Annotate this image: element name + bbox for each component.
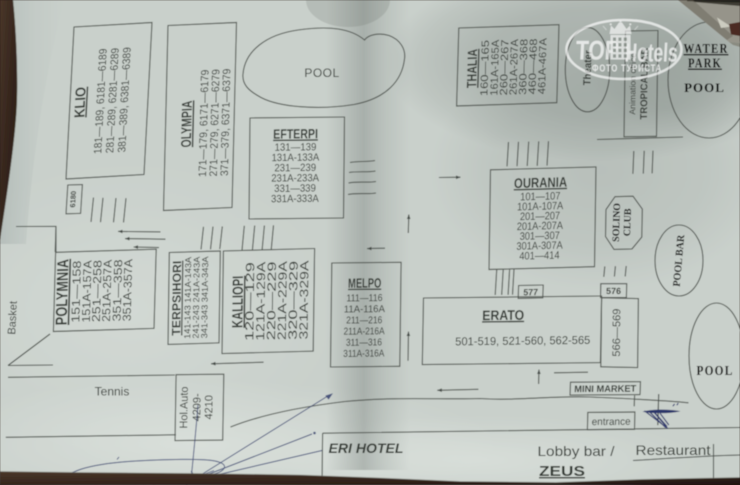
svg-text:POOL: POOL (304, 66, 339, 80)
svg-text:Hol.Auto: Hol.Auto (178, 386, 191, 428)
svg-text:OURANIA: OURANIA (514, 174, 567, 191)
svg-text:321A-329A: 321A-329A (296, 260, 311, 339)
svg-text:211—216: 211—216 (346, 315, 383, 326)
svg-text:Basket: Basket (6, 301, 20, 335)
svg-text:577: 577 (523, 287, 538, 297)
svg-text:CLUB: CLUB (622, 208, 634, 236)
svg-text:6180: 6180 (68, 191, 78, 208)
svg-text:POOL: POOL (697, 364, 734, 379)
svg-text:MELPO: MELPO (348, 276, 381, 291)
svg-text:111—116: 111—116 (346, 293, 383, 304)
svg-text:ERATO: ERATO (482, 307, 524, 323)
svg-text:EFTERPI: EFTERPI (273, 126, 318, 142)
svg-text:MINI MARKET: MINI MARKET (574, 384, 637, 395)
svg-text:4210: 4210 (203, 395, 215, 420)
svg-text:501-519, 521-560, 562-565: 501-519, 521-560, 562-565 (455, 335, 590, 348)
svg-text:Tennis: Tennis (95, 385, 130, 399)
svg-text:entrance: entrance (591, 417, 631, 428)
svg-text:ZEUS: ZEUS (539, 463, 585, 480)
svg-text:576: 576 (606, 286, 621, 296)
svg-text:341-343 341A-343A: 341-343 341A-343A (199, 256, 210, 338)
svg-text:566—569: 566—569 (611, 309, 624, 357)
svg-text:211A-216A: 211A-216A (343, 326, 385, 337)
svg-text:461A-467A: 461A-467A (536, 38, 550, 94)
svg-text:ФОТО ТУРИСТА: ФОТО ТУРИСТА (592, 63, 662, 75)
svg-text:401—414: 401—414 (519, 250, 559, 263)
svg-text:WATER: WATER (684, 41, 729, 56)
svg-text:11A-116A: 11A-116A (344, 304, 386, 315)
svg-text:331A-333A: 331A-333A (271, 194, 319, 206)
svg-text:OLYMPIA: OLYMPIA (179, 100, 196, 148)
svg-text:351A-357A: 351A-357A (122, 259, 136, 322)
svg-text:ERI HOTEL: ERI HOTEL (329, 440, 404, 456)
svg-text:311A-316A: 311A-316A (343, 348, 385, 359)
svg-text:PARK: PARK (688, 56, 722, 71)
svg-text:Restaurant: Restaurant (636, 442, 711, 458)
svg-text:311—316: 311—316 (346, 337, 383, 348)
svg-text:Lobby bar /: Lobby bar / (538, 443, 615, 459)
svg-text:KLIO: KLIO (72, 87, 90, 119)
svg-text:POOL: POOL (684, 80, 725, 95)
